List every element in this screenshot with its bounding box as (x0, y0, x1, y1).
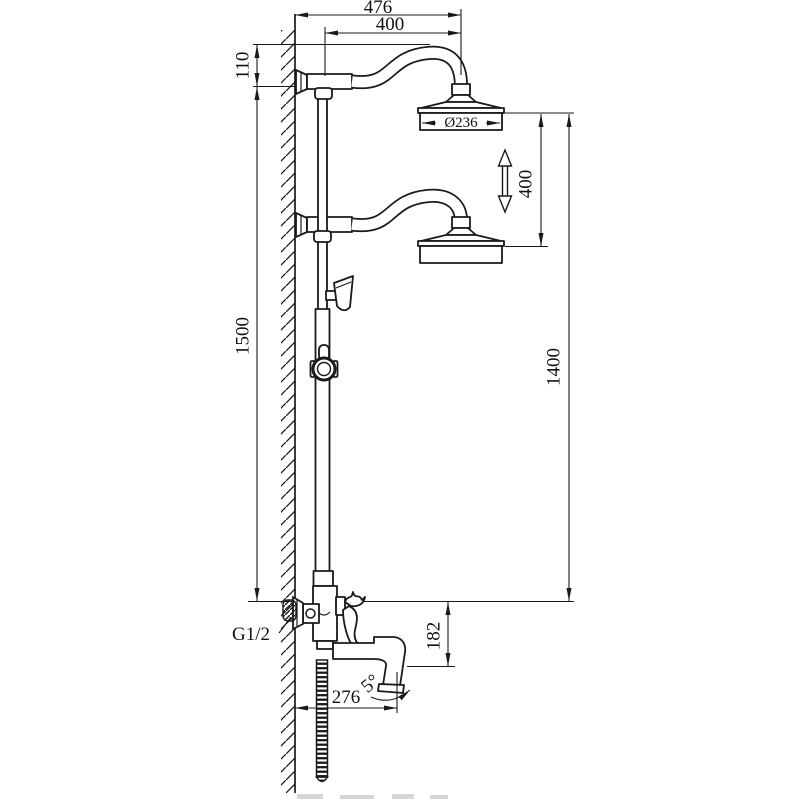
shower-column-pole (314, 88, 332, 577)
dimension-476: 476 (295, 0, 461, 75)
dim-110-label: 110 (233, 52, 254, 80)
wall-hatching (281, 30, 295, 793)
dim-182-label: 182 (424, 622, 445, 651)
shower-hose (317, 660, 328, 782)
up-arrow-icon (499, 150, 512, 166)
cropped-text-marks (297, 794, 448, 799)
union-sleeve (314, 571, 334, 586)
dim-1400-label: 1400 (544, 348, 565, 386)
mid-pole-collar (314, 231, 331, 242)
upper-pole (318, 96, 327, 310)
hand-shower-holder (326, 276, 353, 310)
drawing-page: 476 400 110 Ø236 400 1400 1500 (0, 0, 800, 800)
top-pole-collar (315, 88, 332, 99)
dim-400-adjust-label: 400 (516, 170, 537, 199)
lower-gooseneck-arm (352, 196, 461, 225)
wall-section (281, 14, 295, 793)
lower-shower-head (418, 217, 504, 263)
g12-label: G1/2 (232, 624, 270, 645)
dim-1500-label: 1500 (233, 317, 254, 355)
dimension-1400: 1400 (364, 114, 574, 602)
dimension-276: 276 (295, 672, 397, 713)
dim-400-top-label: 400 (376, 14, 405, 35)
height-adjust-indicator (499, 150, 512, 212)
dimension-182: 182 (407, 602, 455, 667)
dim-5deg-label: 5° (357, 670, 384, 697)
diverter-knob (311, 345, 338, 380)
shower-technical-drawing: 476 400 110 Ø236 400 1400 1500 (0, 0, 800, 800)
dimension-400-adjust: 400 (505, 113, 574, 247)
wall-inlet-nipple (283, 600, 296, 621)
dim-236-label: Ø236 (444, 115, 478, 131)
upper-gooseneck-arm (352, 53, 461, 86)
down-arrow-icon (499, 196, 512, 212)
handle-ornament (345, 592, 365, 606)
dim-276-label: 276 (332, 687, 361, 708)
